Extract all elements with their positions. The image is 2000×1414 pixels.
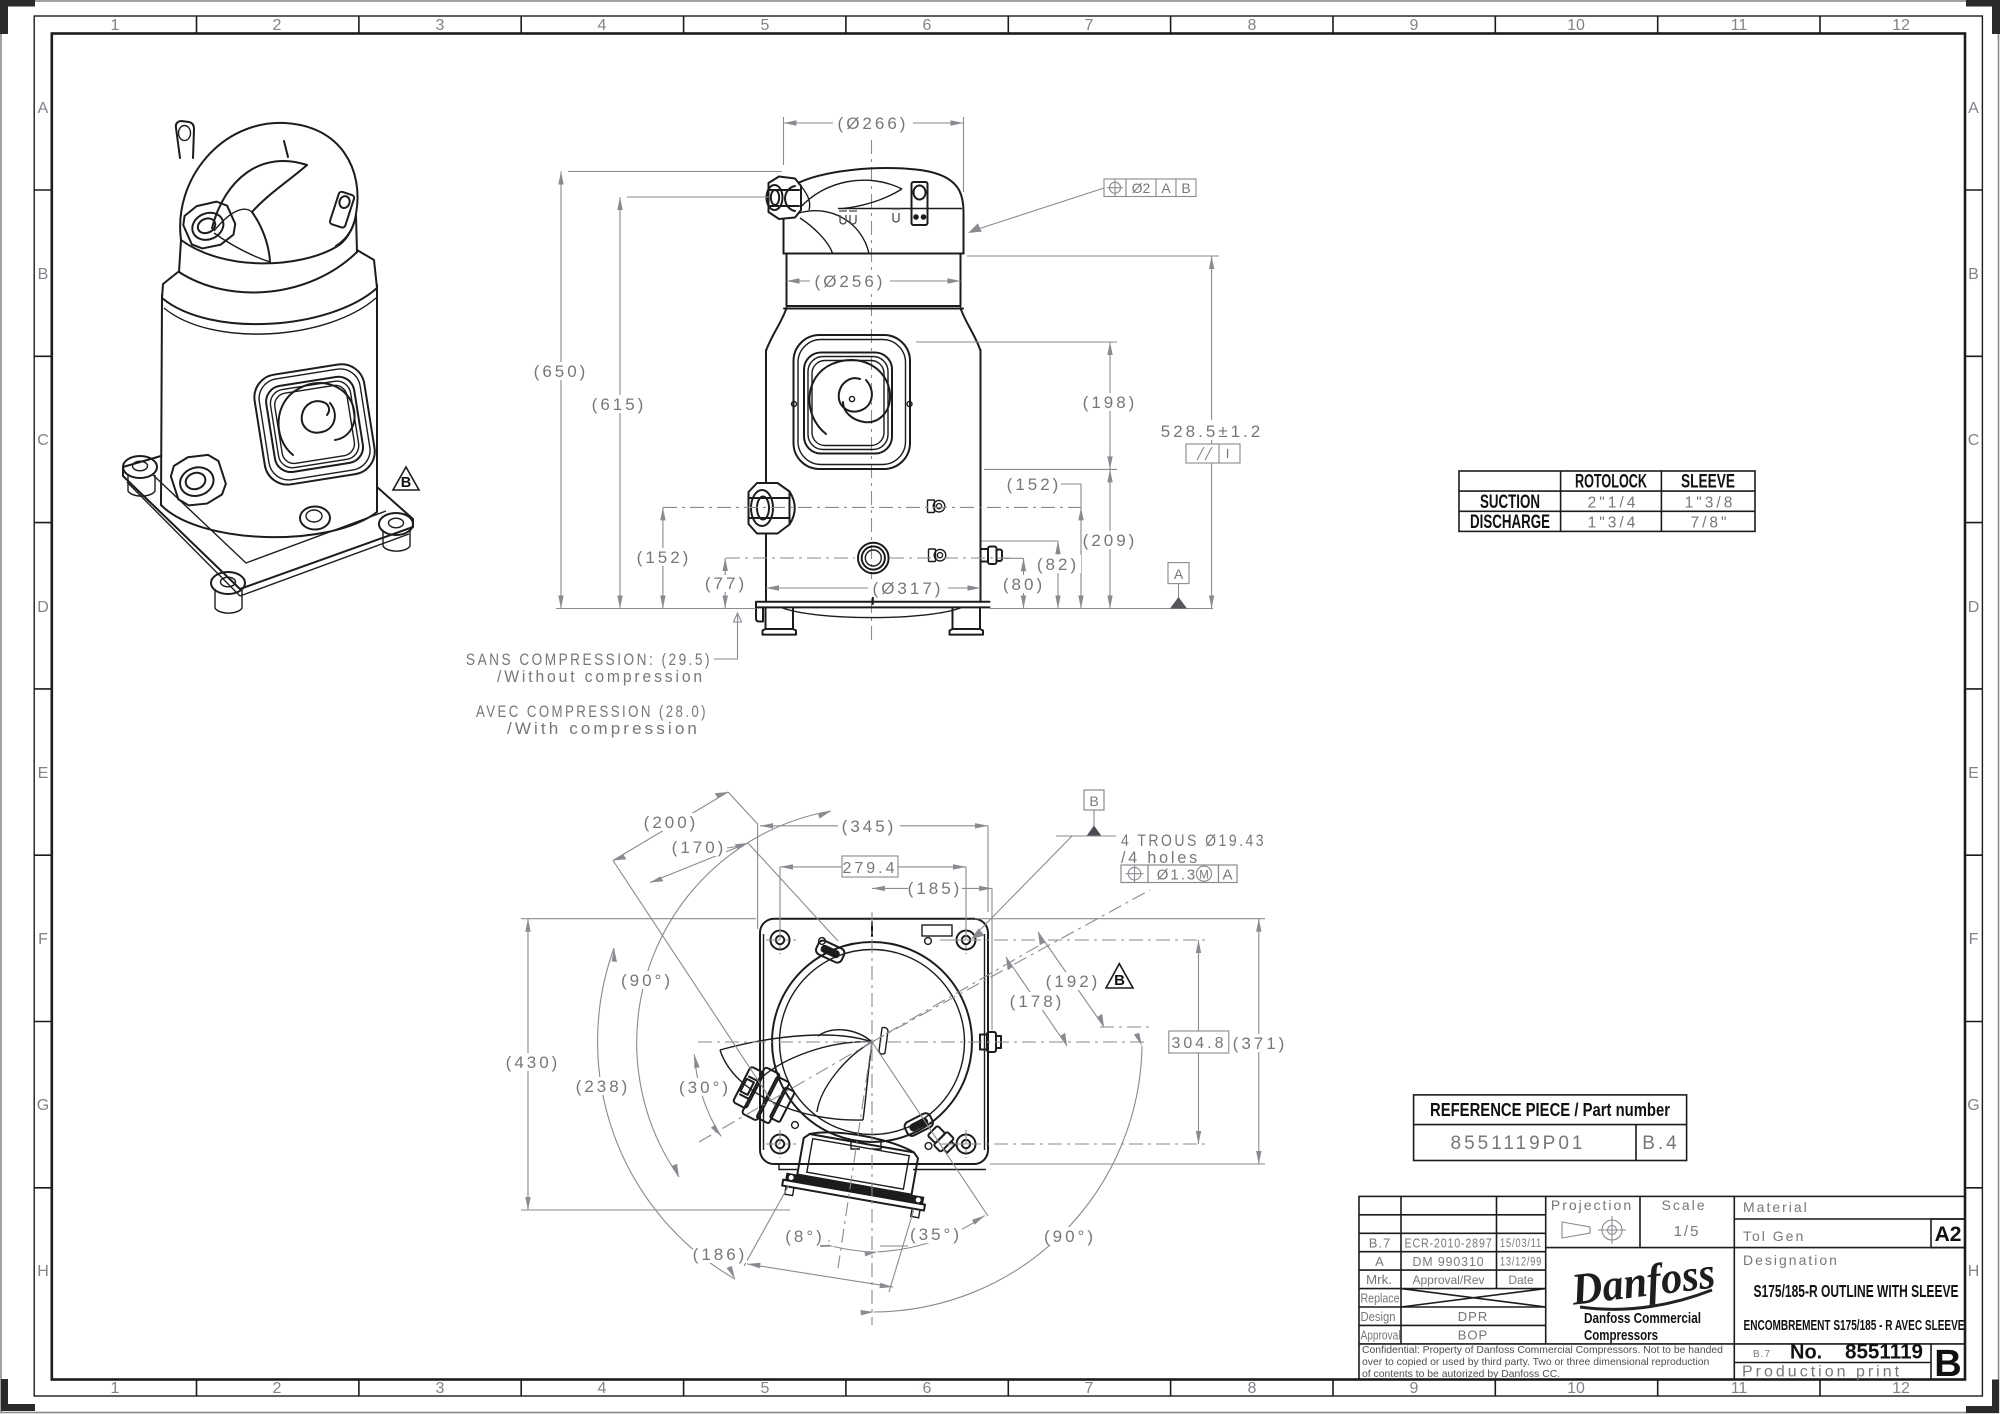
svg-text:/With compression: /With compression [507,720,700,738]
svg-text:DPR: DPR [1458,1309,1488,1324]
svg-text:Replace: Replace [1361,1291,1400,1306]
svg-text:A: A [1375,1254,1385,1269]
svg-text:(186): (186) [693,1245,748,1264]
svg-text:(152): (152) [637,548,692,567]
svg-text:over to copied or used by thir: over to copied or used by third party. T… [1362,1357,1710,1368]
svg-text:3: 3 [436,17,445,34]
svg-text:/4 holes: /4 holes [1121,848,1200,867]
svg-text:528.5±1.2: 528.5±1.2 [1161,422,1264,441]
svg-text:(170): (170) [672,838,727,857]
svg-text:(200): (200) [644,813,699,832]
svg-text:304.8: 304.8 [1171,1035,1226,1052]
svg-text:11: 11 [1731,1380,1748,1397]
svg-text:7/8": 7/8" [1690,515,1729,532]
svg-text:Mrk.: Mrk. [1366,1272,1392,1287]
svg-text:8551119P01: 8551119P01 [1451,1133,1586,1154]
svg-text:G: G [1967,1097,1979,1114]
svg-text:B: B [1181,180,1190,196]
svg-text:DISCHARGE: DISCHARGE [1470,512,1550,533]
svg-text:1"3/8: 1"3/8 [1685,495,1736,512]
svg-text:10: 10 [1567,17,1585,34]
svg-text:Design: Design [1361,1309,1396,1324]
svg-text:(650): (650) [534,362,589,381]
svg-text:SUCTION: SUCTION [1480,492,1540,513]
svg-text:4: 4 [598,1380,607,1397]
svg-text:Scale: Scale [1661,1197,1706,1213]
svg-text:B: B [38,266,49,283]
svg-text:B: B [401,475,411,491]
svg-text:8: 8 [1248,1380,1257,1397]
svg-text:(30°): (30°) [679,1078,731,1097]
svg-text:(Ø317): (Ø317) [873,579,944,598]
svg-text:B.7: B.7 [1369,1236,1392,1251]
svg-text:ECR-2010-2897: ECR-2010-2897 [1405,1236,1493,1251]
svg-text:10: 10 [1567,1380,1585,1397]
svg-text:DM 990310: DM 990310 [1413,1254,1485,1269]
svg-text:Confidential: Property of Danf: Confidential: Property of Danfoss Commer… [1362,1345,1723,1356]
svg-text:5: 5 [761,17,770,34]
svg-text:9: 9 [1410,1380,1419,1397]
svg-text:(178): (178) [1010,992,1065,1011]
svg-text:12: 12 [1892,17,1910,34]
svg-text:REFERENCE PIECE / Part number: REFERENCE PIECE / Part number [1430,1100,1670,1120]
svg-text:B: B [1968,266,1979,283]
svg-text:of contents to be autorized by: of contents to be autorized by Danfoss C… [1362,1369,1560,1380]
svg-text:I: I [1226,446,1233,461]
svg-text:A2: A2 [1935,1223,1962,1246]
svg-text:8551119: 8551119 [1845,1341,1923,1364]
svg-text:Production print: Production print [1742,1364,1902,1381]
svg-text:9: 9 [1410,17,1419,34]
svg-text:E: E [1968,765,1979,782]
svg-text:Projection: Projection [1551,1197,1633,1213]
svg-text:SANS COMPRESSION: (29.5): SANS COMPRESSION: (29.5) [466,651,712,669]
svg-text:(430): (430) [506,1053,561,1072]
svg-text:(238): (238) [576,1077,631,1096]
svg-text:(82): (82) [1037,555,1079,574]
svg-text:(80): (80) [1003,575,1045,594]
svg-text:Tol Gen: Tol Gen [1743,1228,1805,1244]
svg-text:(371): (371) [1233,1034,1288,1053]
svg-text:A: A [38,100,49,117]
svg-text:ENCOMBREMENT S175/185 - R AVEC: ENCOMBREMENT S175/185 - R AVEC SLEEVE [1744,1318,1965,1334]
svg-text:12: 12 [1892,1380,1910,1397]
svg-text:Approval: Approval [1361,1328,1401,1343]
svg-text:(185): (185) [908,879,963,898]
svg-text:Ø1.3: Ø1.3 [1157,867,1198,884]
svg-text:A: A [1161,180,1171,196]
svg-text:4: 4 [598,17,607,34]
svg-text:F: F [38,931,48,948]
svg-text:11: 11 [1731,17,1748,34]
svg-text:5: 5 [761,1380,770,1397]
svg-text:1"3/4: 1"3/4 [1588,515,1639,532]
svg-text:(345): (345) [842,817,897,836]
svg-text:Date: Date [1508,1273,1534,1287]
svg-text:(35°): (35°) [910,1225,962,1244]
svg-text:(90°): (90°) [621,971,673,990]
svg-text:Material: Material [1743,1199,1809,1215]
svg-text:Danfoss Commercial: Danfoss Commercial [1584,1310,1701,1327]
svg-text:E: E [38,765,49,782]
svg-text:SLEEVE: SLEEVE [1681,472,1735,493]
svg-text:(615): (615) [592,395,647,414]
svg-text:S175/185-R OUTLINE WITH SLEEVE: S175/185-R OUTLINE WITH SLEEVE [1754,1281,1959,1301]
svg-text:7: 7 [1085,1380,1094,1397]
svg-text:B: B [1934,1343,1961,1385]
svg-text:Designation: Designation [1743,1252,1839,1268]
svg-text:6: 6 [923,1380,932,1397]
svg-text:1: 1 [111,1380,120,1397]
svg-text:B: B [1114,972,1125,989]
svg-text:(209): (209) [1083,531,1138,550]
svg-text:(Ø266): (Ø266) [838,114,909,133]
svg-text:H: H [1968,1263,1980,1280]
svg-text:C: C [1968,432,1980,449]
svg-text:(152): (152) [1007,475,1062,494]
svg-text:G: G [37,1097,49,1114]
svg-text:Ø2: Ø2 [1132,180,1151,196]
svg-text:279.4: 279.4 [842,860,897,877]
svg-text:A: A [1222,867,1232,884]
svg-text:(198): (198) [1083,393,1138,412]
svg-text:C: C [37,432,49,449]
svg-text:6: 6 [923,17,932,34]
svg-text:D: D [37,599,49,616]
svg-text:/Without compression: /Without compression [497,668,705,686]
svg-text:B: B [1089,793,1098,809]
svg-text:2"1/4: 2"1/4 [1588,495,1639,512]
svg-text:Compressors: Compressors [1584,1327,1658,1344]
svg-text:H: H [37,1263,49,1280]
svg-text:1: 1 [111,17,120,34]
svg-text:2: 2 [273,1380,282,1397]
svg-text:2: 2 [273,17,282,34]
svg-text:15/03/11: 15/03/11 [1500,1238,1542,1250]
svg-text:BOP: BOP [1458,1328,1488,1343]
svg-text:B.7: B.7 [1753,1349,1771,1360]
svg-text:(77): (77) [705,574,747,593]
svg-text:A: A [1968,100,1979,117]
svg-text:F: F [1969,931,1979,948]
svg-text:B.4: B.4 [1642,1133,1680,1154]
svg-text:M: M [1199,869,1209,881]
svg-text:(192): (192) [1046,972,1101,991]
svg-text:13/12/99: 13/12/99 [1500,1257,1542,1269]
svg-text:(90°): (90°) [1044,1227,1096,1246]
svg-text:AVEC COMPRESSION (28.0): AVEC COMPRESSION (28.0) [476,703,708,721]
svg-text:Approval/Rev: Approval/Rev [1413,1273,1485,1287]
svg-text:(Ø256): (Ø256) [815,272,886,291]
svg-text:ROTOLOCK: ROTOLOCK [1575,472,1647,493]
svg-text:(8°): (8°) [785,1227,825,1246]
svg-text:7: 7 [1085,17,1094,34]
svg-text:A: A [1174,566,1184,582]
svg-text:D: D [1968,599,1980,616]
svg-text:3: 3 [436,1380,445,1397]
svg-text:No.: No. [1790,1342,1822,1364]
svg-text:1/5: 1/5 [1674,1223,1701,1240]
svg-text:8: 8 [1248,17,1257,34]
